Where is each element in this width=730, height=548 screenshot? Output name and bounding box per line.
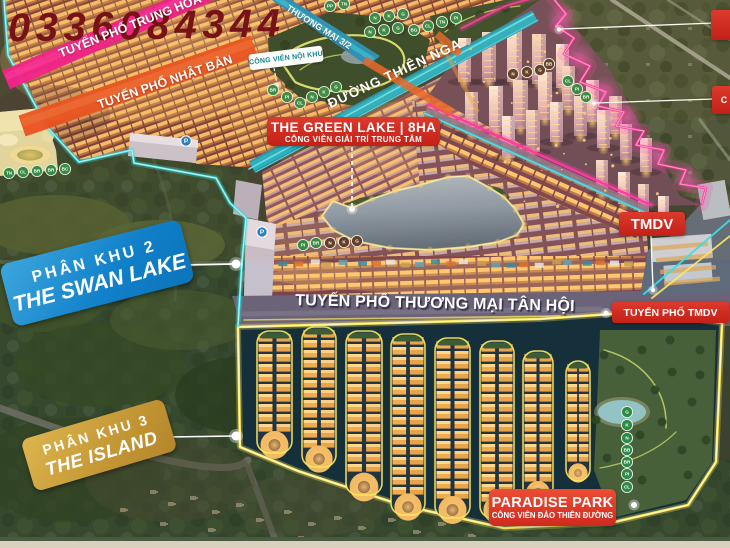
svg-text:CL: CL [624,485,630,490]
svg-text:G: G [625,410,629,415]
svg-text:BB: BB [624,448,631,453]
svg-text:PI: PI [625,472,629,477]
svg-text:BR: BR [624,460,631,465]
